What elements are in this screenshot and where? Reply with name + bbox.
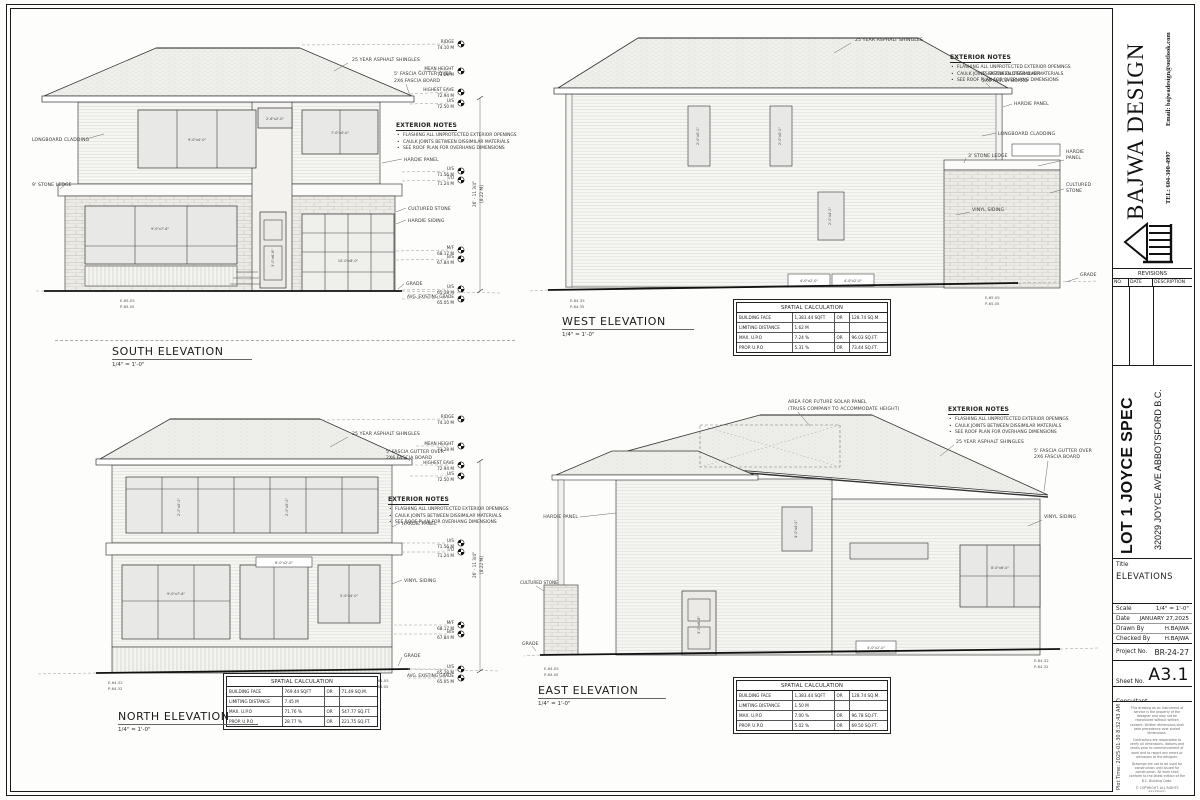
avg-grade-label: AVG. EXISTING GRADE (407, 673, 454, 678)
us3-label: U/S (447, 284, 454, 289)
project-section: LOT 1 JOYCE SPEC 32029 JOYCE AVE ABBOTSF… (1113, 366, 1192, 559)
disclaimer-paragraph: Drawings are not to be used for construc… (1129, 762, 1185, 783)
checked-by-label: Checked By (1116, 636, 1150, 642)
note-item: FLASHING ALL UNPROTECTED EXTERIOR OPENIN… (388, 507, 520, 514)
to-value: 71.24 M (437, 181, 454, 186)
fascia-label-2: 2X6 FASCIA BOARD (394, 78, 440, 84)
spatial-calc-table-east: SPATIAL CALCULATION BUILDING FACE1,383.4… (736, 680, 888, 731)
disclaimer-section: Plot Time: 2025-01-30 8:32:43 AM This dr… (1113, 702, 1192, 792)
table-cell: 1.50 M (793, 701, 835, 710)
west-elevation-title: WEST ELEVATION 1/4" = 1'-0" (562, 315, 694, 338)
stone-ledge-label: 3' STONE LEDGE (968, 153, 1008, 159)
elevation-scale: 1/4" = 1'-0" (562, 332, 694, 338)
table-cell (835, 701, 850, 710)
table-cell: 7.00 % (793, 711, 835, 720)
window-size-label: 9'-0"x7'-6" (151, 227, 170, 231)
table-cell: 1,383.44 SQFT (793, 691, 835, 700)
grade-elev-existing: E-65.05 (120, 298, 135, 303)
elevation-scale: 1/4" = 1'-0" (538, 701, 666, 707)
elevation-target-icon (458, 89, 464, 95)
grade-elev-proposed: P-64.05 (544, 672, 559, 677)
fascia-label-2: 2X6 FASCIA BOARD (1034, 454, 1080, 460)
table-cell: LIMITING DISTANCE (737, 323, 793, 332)
height-dim-m: [8.22 M] (479, 556, 484, 574)
elevation-name: NORTH ELEVATION (118, 710, 258, 725)
bs-label: B/S (447, 629, 454, 634)
longboard-cladding-label: LONGBOARD CLADDING (998, 131, 1056, 137)
window-size-label: 8'-0"x6'-0" (991, 566, 1010, 570)
north-upper-windows: 2'-0"x5'-0" 2'-0"x5'-0" (126, 477, 378, 533)
south-elevation-title: SOUTH ELEVATION 1/4" = 1'-0" (112, 345, 252, 368)
us-label: U/S (447, 471, 454, 476)
door-size-label: 3'-0"x6'-8" (697, 616, 701, 635)
table-cell: PROP. U.P.O (737, 343, 793, 352)
table-cell: 7.45 M (283, 697, 325, 706)
window-size-label: 2'-0"x5'-0" (696, 127, 700, 146)
sheet-no-section: Sheet No. A3.1 (1113, 661, 1192, 687)
west-stone-ledge (944, 144, 1060, 288)
firm-name: BAJWA DESIGN (1123, 20, 1149, 220)
grade-elev-existing: E-64.32 (108, 680, 123, 685)
table-cell: OR (835, 691, 850, 700)
note-item: SEE ROOF PLAN FOR OVERHANG DIMENSIONS (950, 78, 1082, 85)
table-cell: 71.49 SQ.M. (340, 687, 378, 696)
table-cell: 1.62 M (793, 323, 835, 332)
table-row: PROP. U.P.O5.02 %OR69.50 SQ.FT. (737, 720, 887, 730)
firm-section: BAJWA DESIGN Email: bajwadesign@outlook.… (1113, 8, 1192, 269)
table-cell: 5.31 % (793, 343, 835, 352)
rev-col-desc: DESCRIPTION (1153, 279, 1192, 286)
elevation-scale: 1/4" = 1'-0" (118, 727, 258, 733)
elevation-name: WEST ELEVATION (562, 315, 694, 330)
firm-tel: TEL: 604-300-4997 (1165, 128, 1172, 204)
plot-time: Plot Time: 2025-01-30 8:32:43 AM (1116, 704, 1122, 790)
date-label: Date (1116, 616, 1130, 622)
highest-eave-label: HIGHEST EAVE (423, 460, 454, 465)
elevation-target-icon (458, 462, 464, 468)
window-size-label: 2'-0"x5'-0" (778, 127, 782, 146)
south-window-upper-left: 9'-0"x4'-0" (138, 110, 256, 168)
mean-height-value: 73.28 M (437, 447, 454, 452)
mf-label: M/F (447, 620, 455, 625)
drawing-sheet: 9'-0"x4'-0" 2'-6"x2'-0" 7'-0"x4'-0" 9'-0… (0, 0, 1200, 800)
table-title: SPATIAL CALCULATION (227, 677, 377, 687)
firm-email: Email: bajwadesign@outlook.com (1165, 16, 1172, 126)
table-cell: BUILDING FACE (737, 313, 793, 322)
table-cell: MAX. U.P.O (737, 711, 793, 720)
grade-label: GRADE (522, 641, 539, 647)
exterior-notes-west: EXTERIOR NOTES FLASHING ALL UNPROTECTED … (950, 44, 1082, 85)
cultured-stone-label: CULTURED STONE (520, 580, 558, 585)
south-window-main: 9'-0"x7'-6" (85, 206, 237, 286)
shingles-label: 25 YEAR ASPHALT SHINGLES (352, 57, 420, 63)
table-cell: 73.44 SQ.FT. (850, 343, 888, 352)
south-window-small: 2'-6"x2'-0" (258, 108, 292, 128)
bs-value: 67.84 M (437, 635, 454, 640)
table-cell (850, 323, 888, 332)
table-cell: 96.03 SQ.FT. (850, 333, 888, 342)
table-cell: OR (835, 333, 850, 342)
elevation-target-icon (458, 473, 464, 479)
highest-eave-label: HIGHEST EAVE (423, 87, 454, 92)
disclaimer-paragraph: This drawing as an instrument of service… (1129, 706, 1185, 735)
cultured-stone-label: CULTURED (1066, 182, 1091, 188)
hardie-panel-label: HARDIE PANEL (404, 157, 439, 163)
elevation-target-icon (458, 416, 464, 422)
table-cell (850, 701, 888, 710)
window-size-label: 2'-6"x2'-0" (266, 117, 285, 121)
elevation-target-icon (458, 41, 464, 47)
window-size-label: 4'-0"x4'-0" (794, 520, 798, 539)
elevation-target-icon (458, 296, 464, 302)
date-value: JANUARY 27,2025 (1140, 616, 1189, 622)
elevation-name: SOUTH ELEVATION (112, 345, 252, 360)
table-cell: OR (835, 721, 850, 730)
shingles-label: 25 YEAR ASPHALT SHINGLES (956, 439, 1024, 445)
us-label: U/S (447, 98, 454, 103)
hardie-panel-label: HARDIE PANEL (1014, 101, 1049, 107)
height-dim-m: [8.22 M] (479, 185, 484, 203)
hardie-panel-label: HARDIE (1066, 149, 1084, 155)
north-elevation-title: NORTH ELEVATION 1/4" = 1'-0" (118, 710, 258, 733)
notes-title: EXTERIOR NOTES (948, 406, 1009, 415)
window-size-label: 9'-0"x4'-0" (188, 138, 207, 142)
us-value: 72.50 M (437, 477, 454, 482)
height-dim-ft: 26' - 11 3/4" (472, 181, 477, 207)
ridge-value: 74.10 M (437, 45, 454, 50)
height-dim-ft: 26' - 11 3/4" (472, 552, 477, 578)
disclaimer-text: This drawing as an instrument of service… (1129, 706, 1185, 792)
south-grade-line (34, 291, 500, 293)
table-cell (835, 323, 850, 332)
window-size-label: 2'-0"x4'-0" (828, 207, 832, 226)
elevation-target-icon (458, 666, 464, 672)
table-cell: 69.50 SQ.FT. (850, 721, 888, 730)
sheet-title-section: Title ELEVATIONS (1113, 559, 1192, 604)
table-cell: BUILDING FACE (227, 687, 283, 696)
sheet-no-label: Sheet No. (1116, 679, 1144, 685)
window-size-label: 2'-0"x5'-0" (177, 498, 181, 517)
grade-label: GRADE (404, 653, 421, 659)
project-address: 32029 JOYCE AVE ABBOTSFORD B.C. (1153, 372, 1163, 550)
table-cell: BUILDING FACE (737, 691, 793, 700)
notes-title: EXTERIOR NOTES (388, 496, 449, 505)
vent-size-label: 4'-0"x2'-0" (867, 646, 886, 650)
us2-label: U/S (447, 538, 454, 543)
table-row: BUILDING FACE1,383.44 SQFTOR128.74 SQ.M. (737, 313, 887, 322)
solar-note-1: AREA FOR FUTURE SOLAR PANEL (788, 399, 867, 405)
elevation-target-icon (458, 68, 464, 74)
table-title: SPATIAL CALCULATION (737, 681, 887, 691)
ridge-label: RIDGE (441, 39, 455, 44)
bs-value: 67.84 M (437, 260, 454, 265)
garage-size-label: 10'-0"x8'-0" (338, 259, 359, 263)
table-cell: 128.74 SQ.M. (850, 691, 888, 700)
note-item: SEE ROOF PLAN FOR OVERHANG DIMENSIONS (396, 146, 528, 153)
fascia-label-1: 5' FASCIA GUTTER OVER (1034, 448, 1093, 454)
mf-label: M/F (447, 245, 455, 250)
elevation-name: EAST ELEVATION (538, 684, 666, 699)
note-item: FLASHING ALL UNPROTECTED EXTERIOR OPENIN… (948, 417, 1080, 424)
grade-elev-existing: E-64.05 (544, 666, 559, 671)
vent-size-label: 4'-0"x2'-0" (844, 279, 863, 283)
east-stone-column (544, 585, 578, 655)
grade-elev-proposed: P-64.32 (108, 686, 123, 691)
title-block: BAJWA DESIGN Email: bajwadesign@outlook.… (1112, 8, 1192, 792)
shingles-label: 25 YEAR ASPHALT SHINGLES (352, 431, 420, 437)
to-label: T/O (446, 547, 455, 552)
south-garage-door: 10'-0"x8'-0" (302, 214, 394, 291)
drawn-by-value: H.BAJWA (1165, 626, 1189, 632)
grade-elev-proposed: P-65.05 (985, 301, 1000, 306)
grade-elev-proposed: P-64.32 (1034, 664, 1049, 669)
table-cell: OR (835, 313, 850, 322)
mean-height-label: MEAN HEIGHT (424, 441, 454, 446)
table-row: LIMITING DISTANCE7.45 M (227, 696, 377, 706)
fascia-label-1: 5' FASCIA GUTTER OVER (386, 449, 445, 455)
hardie-panel-label: HARDIE PANEL (543, 514, 578, 520)
longboard-cladding-label: LONGBOARD CLADDING (32, 137, 90, 143)
rev-col-date: DATE (1129, 279, 1153, 286)
table-cell: OR (835, 343, 850, 352)
hardie-panel-label-2: PANEL (1066, 155, 1081, 161)
elevation-target-icon (458, 540, 464, 546)
window-size-label: 9'-0"x7'-6" (167, 592, 186, 596)
table-cell: 71.76 % (283, 707, 325, 716)
to-value: 71.24 M (437, 553, 454, 558)
table-cell: PROP. U.P.O (737, 721, 793, 730)
project-no-value: BR-24-27 (1154, 648, 1189, 657)
hardie-siding-label: HARDIE SIDING (408, 218, 445, 224)
revisions-body (1113, 287, 1192, 365)
spatial-calc-table-west: SPATIAL CALCULATION BUILDING FACE1,383.4… (736, 302, 888, 353)
table-cell: OR (325, 687, 340, 696)
cultured-stone-label-2: STONE (1066, 188, 1082, 194)
revisions-title: REVISIONS (1113, 269, 1192, 279)
table-row: LIMITING DISTANCE1.50 M (737, 700, 887, 710)
east-elevation-title: EAST ELEVATION 1/4" = 1'-0" (538, 684, 666, 707)
shingles-label: 25 YEAR ASPHALT SHINGLES (855, 37, 923, 43)
table-title: SPATIAL CALCULATION (737, 303, 887, 313)
stone-ledge-label: 9' STONE LEDGE (32, 182, 72, 188)
us-value: 72.50 M (437, 104, 454, 109)
scale-label: Scale (1116, 606, 1132, 612)
elevation-target-icon (458, 100, 464, 106)
window-size-label: 5'-0"x4'-0" (340, 594, 359, 598)
table-row: BUILDING FACE1,383.44 SQFTOR128.74 SQ.M. (737, 691, 887, 700)
elevation-target-icon (458, 675, 464, 681)
elevation-target-icon (458, 549, 464, 555)
table-cell: LIMITING DISTANCE (737, 701, 793, 710)
table-cell: 7.24 % (793, 333, 835, 342)
door-size-label: 3'-0"x6'-8" (271, 249, 275, 268)
note-item: FLASHING ALL UNPROTECTED EXTERIOR OPENIN… (950, 65, 1082, 72)
project-no-label: Project No. (1116, 649, 1147, 655)
grade-elev-existing: E-64.32 (1034, 658, 1049, 663)
meta-section: Scale1/4" = 1'-0" DateJANUARY 27,2025 Dr… (1113, 604, 1192, 644)
table-cell: LIMITING DISTANCE (227, 697, 283, 706)
bs-label: B/S (447, 254, 454, 259)
table-cell (340, 697, 378, 706)
table-row: MAX. U.P.O7.00 %OR96.78 SQ.FT. (737, 710, 887, 720)
table-cell: 221.75 SQ.FT. (340, 717, 378, 726)
table-cell: OR (325, 717, 340, 726)
avg-grade-value: 65.05 M (437, 679, 454, 684)
table-cell: 1,383.44 SQFT (793, 313, 835, 322)
revisions-section: REVISIONS NO. DATE DESCRIPTION (1113, 269, 1192, 366)
vinyl-siding-label: VINYL SIDING (404, 578, 436, 584)
sheet-no-value: A3.1 (1148, 665, 1189, 685)
datum-dash-line (55, 340, 515, 341)
exterior-notes-east: EXTERIOR NOTES FLASHING ALL UNPROTECTED … (948, 396, 1080, 437)
consultant-section: Consultant (1113, 687, 1192, 702)
table-cell: OR (325, 707, 340, 716)
elevation-target-icon (458, 247, 464, 253)
solar-note-2: (TRUSS COMPANY TO ACCOMMODATE HEIGHT) (788, 406, 900, 412)
grade-elev-existing: E-64.35 (570, 298, 585, 303)
elevation-target-icon (458, 622, 464, 628)
east-entry-door: 3'-0"x6'-8" (682, 591, 716, 655)
table-cell: MAX. U.P.O (737, 333, 793, 342)
sheet-title: ELEVATIONS (1116, 572, 1189, 582)
title-label: Title (1116, 562, 1189, 568)
grade-label: GRADE (406, 281, 423, 287)
ridge-label: RIDGE (441, 414, 455, 419)
disclaimer-paragraph: © COPYRIGHT. ALL RIGHTS RESERVED (1129, 786, 1185, 792)
scale-value: 1/4" = 1'-0" (1156, 606, 1189, 612)
elevation-target-icon (458, 177, 464, 183)
table-cell: 128.74 SQ.M. (850, 313, 888, 322)
ridge-value: 74.10 M (437, 420, 454, 425)
note-item: SEE ROOF PLAN FOR OVERHANG DIMENSIONS (388, 520, 520, 527)
elevation-scale: 1/4" = 1'-0" (112, 362, 252, 368)
grade-elev-proposed: P-64.35 (570, 304, 585, 309)
table-cell: 5.02 % (793, 721, 835, 730)
table-row: LIMITING DISTANCE1.62 M (737, 322, 887, 332)
notes-title: EXTERIOR NOTES (396, 122, 457, 131)
table-row: BUILDING FACE769.44 SQFTOR71.49 SQ.M. (227, 687, 377, 696)
elevation-target-icon (458, 256, 464, 262)
table-cell: 769.44 SQFT (283, 687, 325, 696)
project-name: LOT 1 JOYCE SPEC (1119, 368, 1137, 554)
table-cell: OR (835, 711, 850, 720)
vinyl-siding-label: VINYL SIDING (1044, 514, 1076, 520)
avg-grade-value: 65.05 M (437, 300, 454, 305)
firm-logo-icon (1121, 218, 1181, 266)
to-label: T/O (446, 175, 455, 180)
south-elevation-drawing: 9'-0"x4'-0" 2'-6"x2'-0" 7'-0"x4'-0" 9'-0… (30, 14, 515, 380)
table-cell: 547.77 SQ.FT. (340, 707, 378, 716)
table-row: MAX. U.P.O7.24 %OR96.03 SQ.FT. (737, 332, 887, 342)
checked-by-value: H.BAJWA (1165, 636, 1189, 642)
table-cell (325, 697, 340, 706)
disclaimer-paragraph: Contractors are responsible to verify al… (1129, 738, 1185, 759)
exterior-notes-north: EXTERIOR NOTES FLASHING ALL UNPROTECTED … (388, 486, 520, 527)
mean-height-label: MEAN HEIGHT (424, 66, 454, 71)
grade-elev-existing: E-65.05 (985, 295, 1000, 300)
avg-grade-label: AVG. EXISTING GRADE (407, 294, 454, 299)
table-row: PROP. U.P.O5.31 %OR73.44 SQ.FT. (737, 342, 887, 352)
south-window-upper-right: 7'-0"x4'-0" (302, 110, 378, 154)
us3-label: U/S (447, 664, 454, 669)
window-size-label: 2'-0"x5'-0" (285, 498, 289, 517)
us2-label: U/S (447, 166, 454, 171)
project-no-section: Project No. BR-24-27 (1113, 644, 1192, 661)
table-cell: 28.77 % (283, 717, 325, 726)
notes-title: EXTERIOR NOTES (950, 54, 1011, 63)
table-cell: 96.78 SQ.FT. (850, 711, 888, 720)
elevation-target-icon (458, 443, 464, 449)
elevation-target-icon (458, 168, 464, 174)
rev-col-no: NO. (1113, 279, 1129, 286)
exterior-notes-south: EXTERIOR NOTES FLASHING ALL UNPROTECTED … (396, 112, 528, 153)
grade-label: GRADE (1080, 272, 1097, 278)
window-size-label: 7'-0"x4'-0" (331, 131, 350, 135)
mean-height-value: 73.28 M (437, 72, 454, 77)
vent-size-label: 4'-0"x2'-0" (800, 279, 819, 283)
drawn-by-label: Drawn By (1116, 626, 1144, 632)
elevation-target-icon (458, 631, 464, 637)
window-size-label: 6'-0"x2'-0" (275, 561, 294, 565)
cultured-stone-label: CULTURED STONE (408, 206, 451, 212)
elevation-target-icon (458, 286, 464, 292)
note-item: FLASHING ALL UNPROTECTED EXTERIOR OPENIN… (396, 133, 528, 140)
vinyl-siding-label: VINYL SIDING (972, 207, 1004, 213)
note-item: SEE ROOF PLAN FOR OVERHANG DIMENSIONS (948, 430, 1080, 437)
grade-elev-proposed: P-65.05 (120, 304, 135, 309)
